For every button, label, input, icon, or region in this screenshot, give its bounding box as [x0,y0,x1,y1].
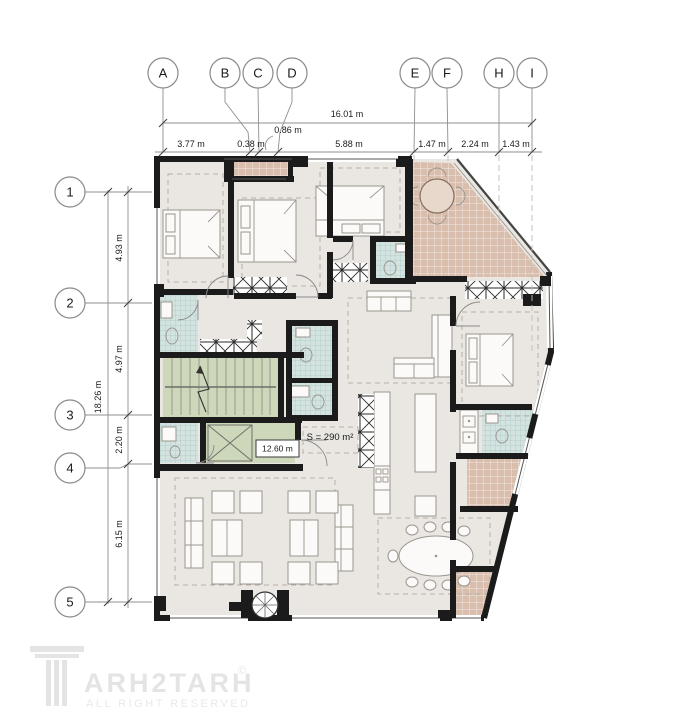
kitchen-tall-cabinet [358,394,374,468]
dim-top-seg-3: 0.86 m [274,125,302,135]
dim-top-seg-2: 0.38 m [237,139,265,149]
dim-top-total: 16.01 m [331,109,364,119]
grid-column-a: A [159,66,168,81]
floor-plan-sheet: S = 290 m² 12.60 m A B C D E F H I 16.01… [0,0,683,720]
grid-rows: 1 2 3 4 5 [55,177,152,617]
dim-top-seg-7: 1.43 m [502,139,530,149]
dim-top-seg-4: 5.88 m [335,139,363,149]
kitchen-sink [460,410,478,456]
grid-column-i: I [530,66,534,81]
stair-room-area-label: 12.60 m [262,444,293,454]
dim-top-seg-5: 1.47 m [418,139,446,149]
grid-column-e: E [411,66,420,81]
grid-column-f: F [443,66,451,81]
floor-plan-drawing: S = 290 m² 12.60 m A B C D E F H I 16.01… [0,0,683,720]
dim-left-total: 18.26 m [93,381,103,414]
watermark-brand: ARH2TARH [84,668,255,698]
column-logo-icon [30,646,84,706]
bed-1 [163,210,220,258]
watermark: ARH2TARH © ALL RIGHT RESERVED [30,646,255,710]
left-dimensions: 4.93 m 4.97 m 2.20 m 6.15 m 18.26 m [93,186,132,608]
top-dimensions: 16.01 m 3.77 m 0.38 m 0.86 m 5.88 m 1.47… [155,109,542,156]
grid-column-b: B [221,66,230,81]
dim-top-seg-6: 2.24 m [461,139,489,149]
grid-row-1: 1 [66,185,73,200]
grid-column-h: H [494,66,503,81]
bed-2 [238,200,296,262]
dim-left-seg-4: 6.15 m [114,520,124,548]
bed-4 [466,334,513,386]
dim-left-seg-2: 4.97 m [114,345,124,373]
dim-top-seg-1: 3.77 m [177,139,205,149]
grid-column-c: C [253,66,262,81]
area-label: S = 290 m² [307,432,354,443]
dim-left-seg-1: 4.93 m [114,234,124,262]
grid-row-5: 5 [66,595,73,610]
grid-row-3: 3 [66,408,73,423]
grid-column-d: D [287,66,296,81]
grid-row-2: 2 [66,296,73,311]
watermark-tagline: ALL RIGHT RESERVED [86,698,251,710]
watermark-copyright: © [238,665,246,677]
bed-3 [316,186,384,236]
dim-left-seg-3: 2.20 m [114,426,124,454]
grid-row-4: 4 [66,461,73,476]
